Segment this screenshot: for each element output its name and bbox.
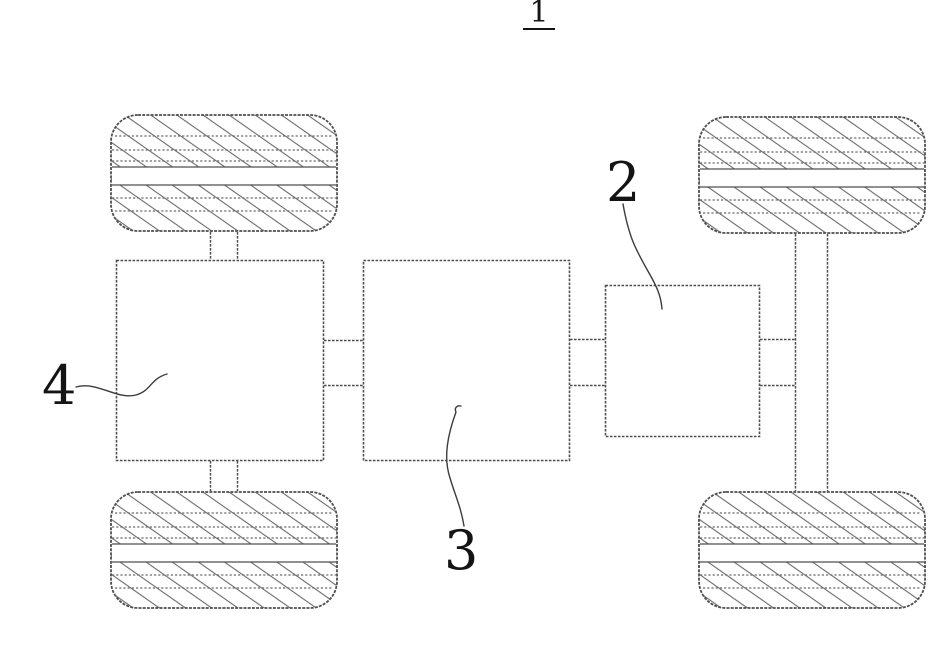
axle-left-top	[211, 232, 238, 260]
axle-left-bottom	[211, 461, 238, 491]
component-box-2	[606, 286, 760, 437]
figure-number: 1	[523, 0, 555, 30]
part-label-2: 2	[606, 156, 640, 210]
part-label-3: 3	[444, 524, 478, 578]
axle-right	[796, 234, 828, 491]
shaft-box3-box2	[570, 340, 605, 386]
wheel-top-left	[111, 115, 337, 231]
part-label-4: 4	[42, 359, 76, 413]
shaft-box2-axle	[760, 340, 795, 386]
patent-figure-canvas: 1 2 3 4	[0, 0, 944, 654]
component-box-4	[117, 261, 324, 461]
wheel-top-right	[699, 117, 925, 233]
wheel-bottom-left	[111, 492, 337, 608]
component-box-3	[364, 261, 570, 461]
shaft-box4-box3	[324, 341, 363, 386]
wheel-bottom-right	[699, 492, 925, 608]
